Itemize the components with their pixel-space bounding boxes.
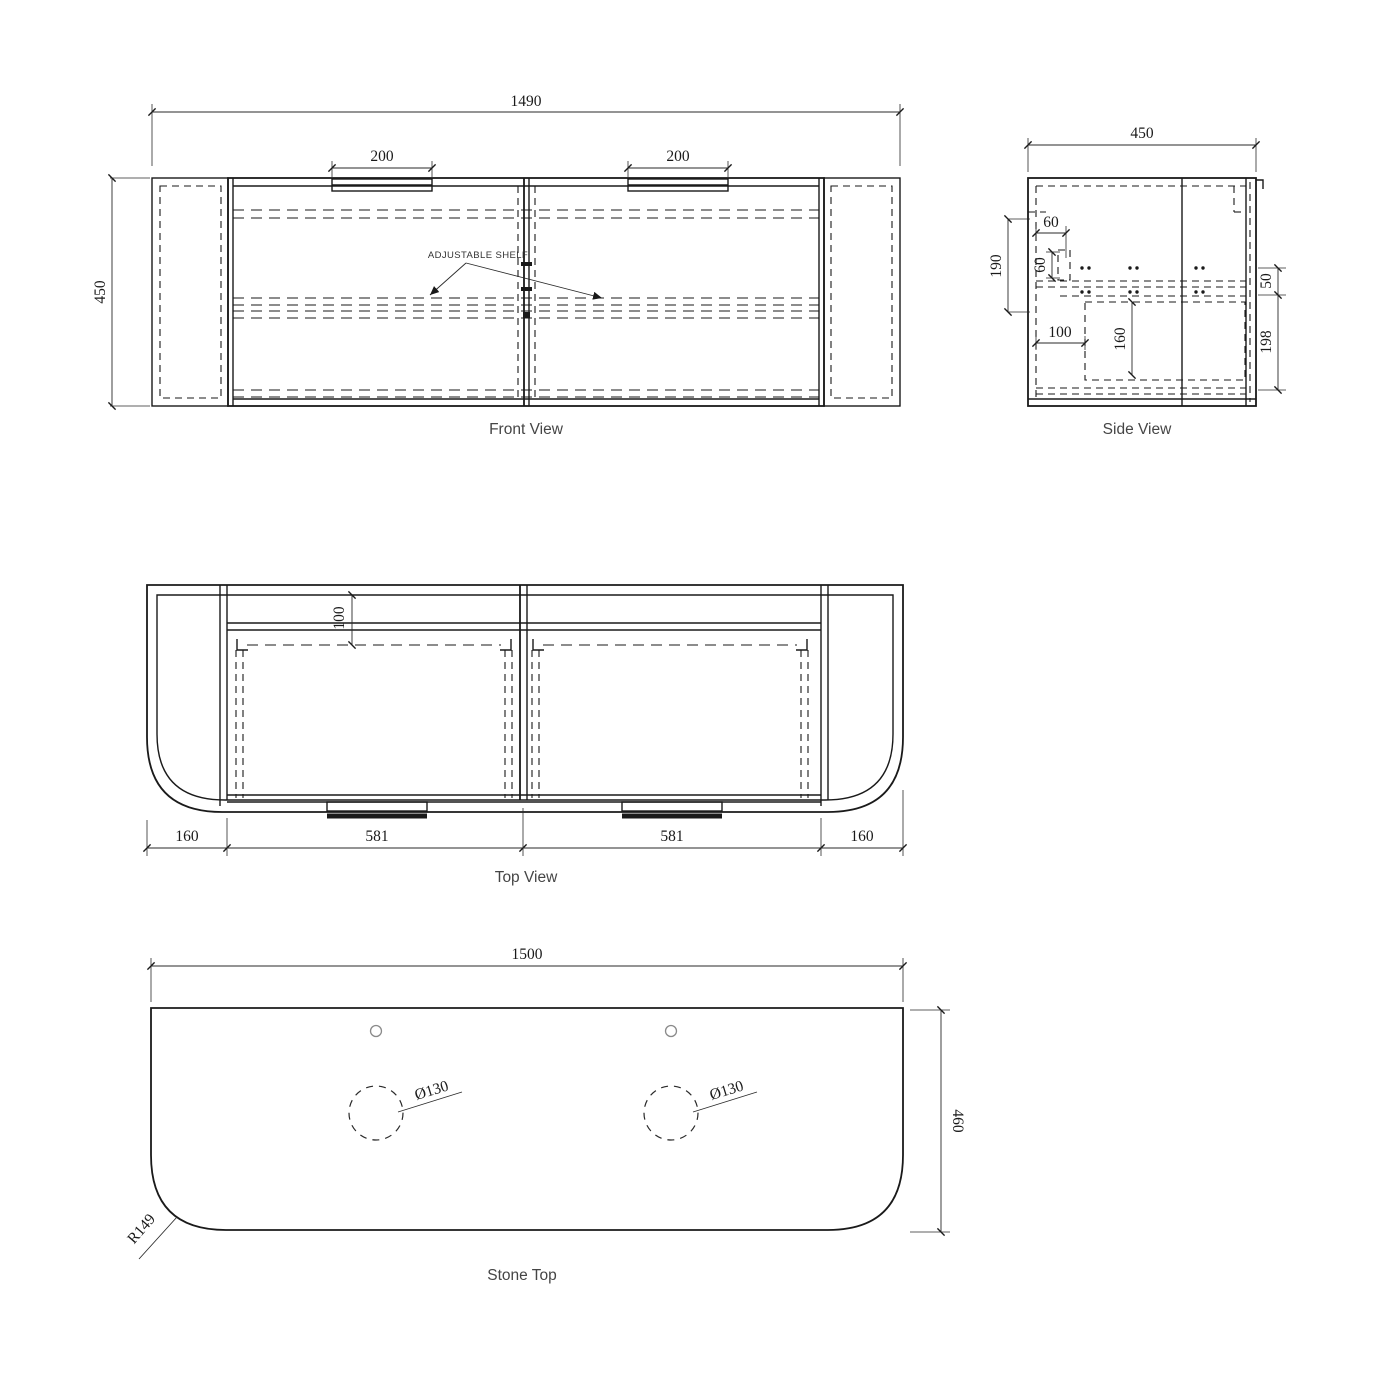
divider-clip-lower: [523, 312, 530, 318]
shelf-leader-right: [466, 263, 602, 298]
front-carcass: [228, 178, 824, 406]
side-carcass: [1028, 178, 1256, 406]
top-drawer-boxes-hidden: [236, 639, 808, 798]
top-carcass-lines: [227, 585, 821, 802]
stone-outline: [151, 1008, 903, 1230]
stone-top-title: Stone Top: [487, 1267, 557, 1284]
side-wall-offset-dim: 190: [988, 254, 1005, 278]
left-hole-dia-label: Ø130: [413, 1077, 451, 1103]
technical-drawing: ADJUSTABLE SHELF 1490 200 200 450 Front …: [0, 0, 1400, 1400]
side-top-hook: [1256, 180, 1263, 189]
front-handle-recesses: [332, 179, 728, 191]
stone-radius-label: R149: [124, 1211, 159, 1248]
stone-width-dim: 1500: [512, 946, 543, 963]
front-right-wing-panel: [824, 178, 900, 406]
right-tap-hole: [666, 1026, 677, 1037]
right-waste-hole: [644, 1086, 698, 1140]
top-back-gap-dim: 100: [331, 606, 348, 630]
front-left-wing-hidden-edge: [160, 186, 221, 398]
side-depth-dim: 450: [1130, 125, 1154, 142]
top-handles: [327, 802, 722, 816]
adjustable-shelf-callout: ADJUSTABLE SHELF: [428, 250, 602, 298]
front-cabinet-outline: [152, 178, 900, 406]
front-left-wing-panel: [152, 178, 228, 406]
top-inner-profile: [157, 595, 893, 800]
front-height-dim: 450: [92, 280, 109, 304]
top-outer-profile: [147, 585, 903, 812]
side-view-title: Side View: [1103, 421, 1172, 438]
side-dimensions: 450 190 60 60 100 160 50: [988, 125, 1286, 390]
side-bracket-height-dim: 60: [1032, 257, 1049, 273]
top-left-return-dim: 160: [175, 828, 199, 845]
side-view: 450 190 60 60 100 160 50: [988, 125, 1286, 438]
side-bracket-hidden: [1058, 250, 1070, 280]
stone-depth-dim: 460: [949, 1109, 966, 1133]
top-bent-panel: [147, 585, 903, 812]
side-bracket-width-dim: 60: [1043, 214, 1059, 231]
left-tap-hole: [371, 1026, 382, 1037]
top-right-return-dim: 160: [850, 828, 874, 845]
front-right-handle-dim: 200: [666, 148, 690, 165]
top-door-left-dim: 581: [365, 828, 388, 845]
stone-hole-callouts: Ø130 Ø130: [398, 1077, 757, 1112]
divider-clip-upper: [521, 262, 532, 266]
top-right-handle: [622, 802, 722, 811]
front-right-wing-hidden-edge: [831, 186, 892, 398]
stone-top-view: Ø130 Ø130 1500 460 R149 Stone Top: [124, 946, 966, 1284]
stone-dimensions: 1500 460 R149: [124, 946, 966, 1259]
side-bottom-gap-dim: 198: [1258, 330, 1275, 354]
top-view: 100 160 581 581 160 Top View: [147, 585, 903, 886]
side-drawer-offset-dim: 100: [1048, 324, 1072, 341]
front-view: ADJUSTABLE SHELF 1490 200 200 450 Front …: [92, 93, 900, 438]
front-view-title: Front View: [489, 421, 564, 438]
top-dimensions: 100 160 581 581 160: [147, 595, 903, 856]
right-hole-dia-label: Ø130: [708, 1077, 746, 1103]
left-waste-hole: [349, 1086, 403, 1140]
top-left-handle: [327, 802, 427, 811]
adjustable-shelf-label: ADJUSTABLE SHELF: [428, 250, 528, 261]
side-drawer-hidden: [1085, 302, 1245, 380]
side-drawer-height-dim: 160: [1112, 327, 1129, 351]
divider-clip-middle: [521, 287, 532, 291]
top-door-right-dim: 581: [660, 828, 683, 845]
front-hidden-shelf-lines: [233, 210, 819, 397]
side-shelf-pin-holes: [1080, 266, 1204, 293]
side-body-outline: [1028, 178, 1263, 406]
side-hidden-lines: [1028, 186, 1256, 399]
side-top-gap-dim: 50: [1258, 273, 1275, 289]
front-width-dim: 1490: [511, 93, 542, 110]
drawing-sheet: ADJUSTABLE SHELF 1490 200 200 450 Front …: [0, 0, 1400, 1400]
shelf-leader-left: [430, 263, 466, 295]
top-view-title: Top View: [495, 869, 558, 886]
front-left-handle-dim: 200: [370, 148, 394, 165]
